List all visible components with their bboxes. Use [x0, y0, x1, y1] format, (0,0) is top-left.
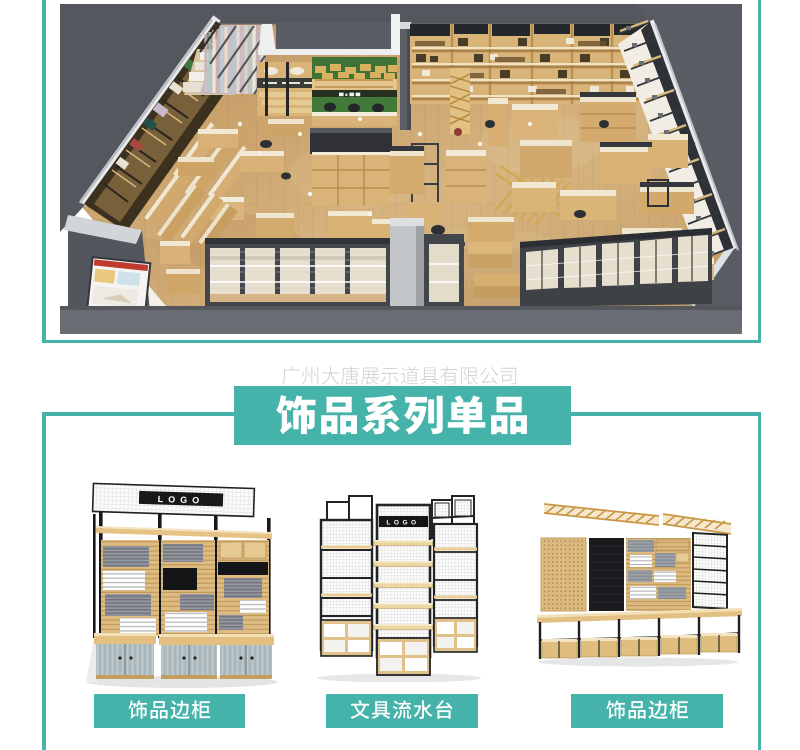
svg-text:LOGO: LOGO [158, 494, 205, 505]
svg-text:LOGO: LOGO [386, 520, 419, 527]
